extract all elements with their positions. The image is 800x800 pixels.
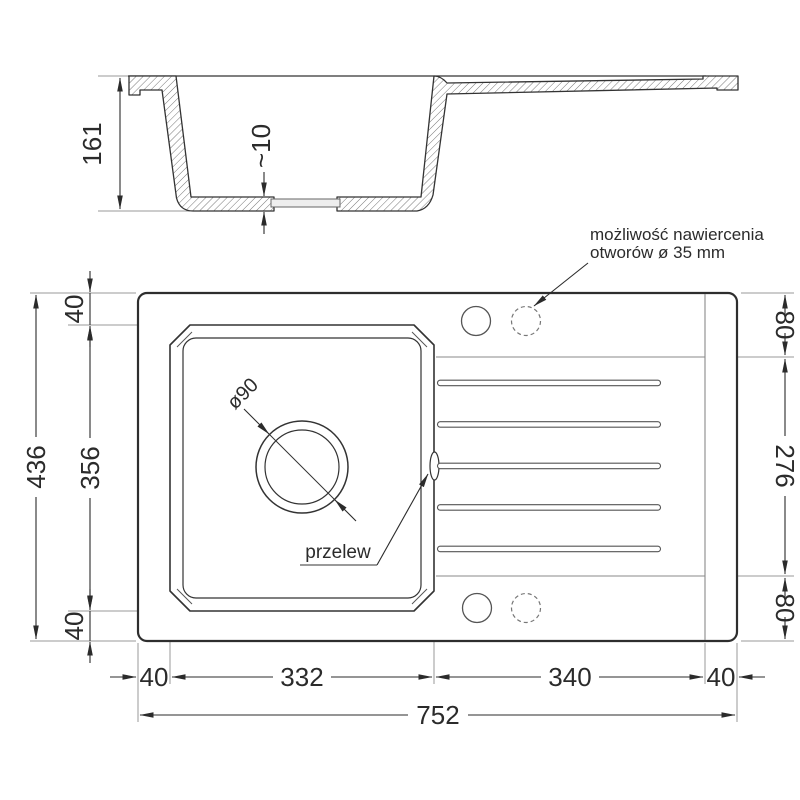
sink-technical-drawing: 161 ~10 bbox=[0, 0, 800, 800]
dim-text-340: 340 bbox=[548, 662, 591, 692]
dim-text-80-top: 80 bbox=[770, 311, 800, 340]
tap-hole-bottom bbox=[463, 594, 492, 623]
dim-text-436: 436 bbox=[21, 445, 51, 488]
drainer-groove-5 bbox=[438, 546, 661, 552]
section-right-wall-drainer-cut bbox=[337, 76, 738, 211]
dim-text-80-bottom: 80 bbox=[770, 594, 800, 623]
dimension-drain-offset: ~10 bbox=[246, 124, 276, 234]
overflow-label: przelew bbox=[305, 542, 371, 563]
sink-bowl: ø90 bbox=[170, 325, 439, 611]
dim-text-356: 356 bbox=[75, 446, 105, 489]
dim-text-40-margin-right: 40 bbox=[707, 662, 736, 692]
drawing-canvas: 161 ~10 bbox=[0, 0, 800, 800]
tap-hole-top bbox=[462, 307, 491, 336]
sink-section-view: 161 ~10 bbox=[77, 76, 738, 234]
dim-text-40-bottom-left: 40 bbox=[59, 612, 89, 641]
drainer-groove-2 bbox=[438, 422, 661, 428]
dim-text-161: 161 bbox=[77, 122, 107, 165]
dim-text-276: 276 bbox=[770, 444, 800, 487]
dim-text-10: ~10 bbox=[246, 124, 276, 168]
dim-text-752: 752 bbox=[416, 700, 459, 730]
dimension-section-depth: 161 bbox=[77, 78, 120, 209]
section-drain-recess bbox=[271, 199, 340, 207]
drainer-groove-1 bbox=[438, 380, 661, 386]
dimensions-bottom: 40 332 340 40 752 bbox=[110, 662, 765, 730]
dim-text-40-margin-left: 40 bbox=[140, 662, 169, 692]
drainer-groove-3 bbox=[438, 463, 661, 469]
holes-note-line1: możliwość nawiercenia bbox=[590, 225, 764, 244]
dim-text-40-top-left: 40 bbox=[59, 295, 89, 324]
holes-note-line2: otworów ø 35 mm bbox=[590, 243, 725, 262]
dimensions-left: 436 40 356 40 bbox=[21, 271, 105, 663]
dimensions-right: 80 276 80 bbox=[770, 295, 800, 639]
dim-text-332: 332 bbox=[280, 662, 323, 692]
sink-plan-view: ø90 przelew możliwość nawierceni bbox=[21, 225, 800, 730]
drainer-groove-4 bbox=[438, 505, 661, 511]
